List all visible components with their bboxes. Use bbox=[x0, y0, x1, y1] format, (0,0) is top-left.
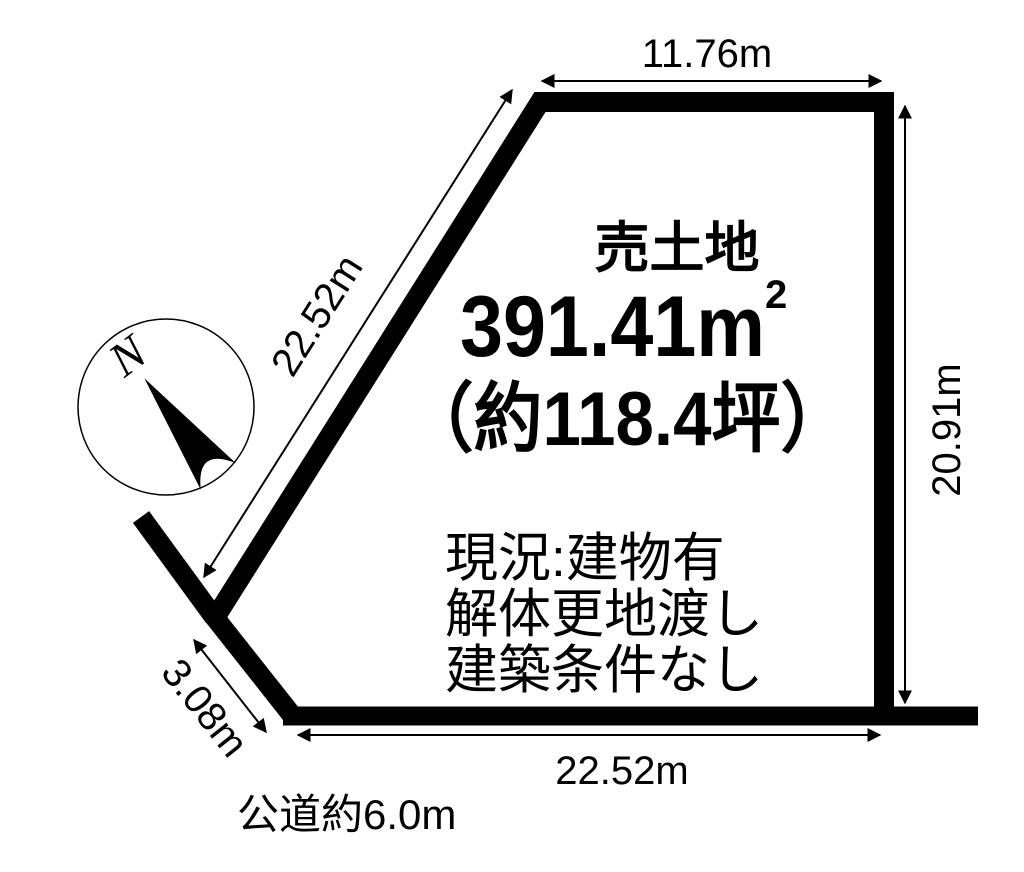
status-line-2: 解体更地渡し bbox=[445, 585, 763, 644]
dim-label-right: 20.91m bbox=[925, 363, 969, 496]
dim-label-short-edge: 3.08m bbox=[153, 651, 257, 765]
plot-drawing: N 11.76m 20.91m 22.52m 3.08m 22.52m 公道約6… bbox=[0, 0, 1024, 872]
north-arrow-icon bbox=[127, 365, 236, 490]
dim-label-left-diagonal: 22.52m bbox=[263, 247, 372, 383]
compass-north-label: N bbox=[98, 324, 159, 388]
dim-label-top: 11.76m bbox=[642, 32, 772, 76]
status-line-3: 建築条件なし bbox=[445, 641, 763, 700]
compass: N bbox=[78, 319, 254, 495]
land-plot-diagram: N 11.76m 20.91m 22.52m 3.08m 22.52m 公道約6… bbox=[0, 0, 1024, 872]
road-label: 公道約6.0m bbox=[237, 791, 456, 838]
lot-area-tsubo: （約118.4坪） bbox=[405, 377, 850, 462]
lot-area-sqm: 391.41m bbox=[460, 279, 765, 375]
lot-type-label: 売土地 bbox=[594, 217, 759, 279]
lot-area-sqm-superscript: 2 bbox=[765, 273, 787, 317]
dim-label-bottom: 22.52m bbox=[555, 749, 688, 793]
road-edge-line bbox=[141, 517, 214, 617]
status-line-1: 現況:建物有 bbox=[445, 529, 725, 588]
